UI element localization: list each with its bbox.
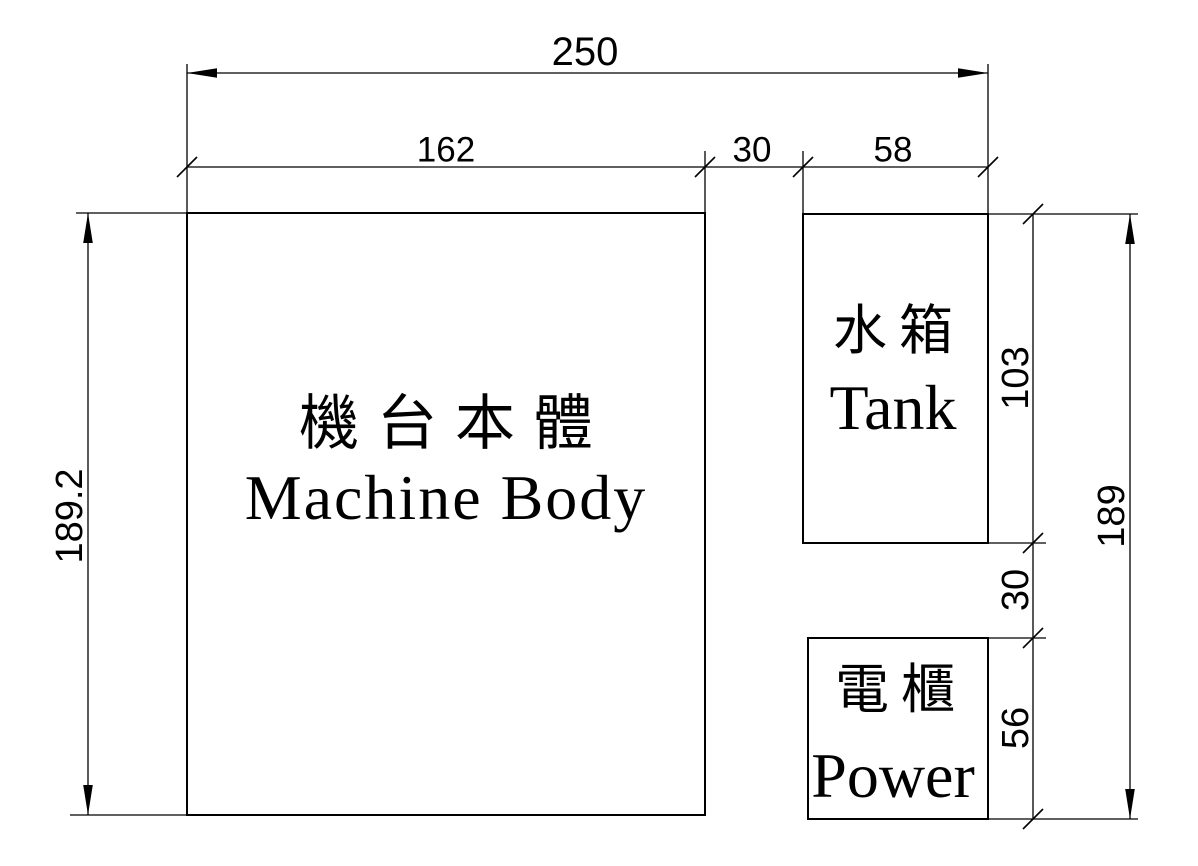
tank-label-en: Tank	[829, 376, 956, 440]
arrow-machine-height-bottom	[83, 785, 93, 815]
dim-text-gap-horizontal: 30	[733, 133, 772, 168]
power-label-en: Power	[811, 744, 975, 808]
machine-body-label-cjk: 機台本體	[281, 394, 611, 454]
tank-label-cjk: 水箱	[821, 304, 965, 358]
drawing-canvas: 250 162 30 58 189.2 103 30 56 189 機台本體 M…	[0, 0, 1198, 866]
dim-text-tank-height: 103	[997, 346, 1035, 409]
arrow-machine-height-top	[83, 213, 93, 243]
arrow-overall-height-top	[1125, 214, 1135, 244]
dim-text-machine-width: 162	[417, 133, 475, 168]
arrow-overall-width-left	[187, 68, 217, 78]
arrow-overall-width-right	[958, 68, 988, 78]
power-label-cjk: 電櫃	[823, 663, 967, 717]
machine-body-label-en: Machine Body	[245, 466, 648, 530]
arrow-overall-height-bottom	[1125, 789, 1135, 819]
dim-text-overall-height: 189	[1093, 484, 1131, 547]
dim-text-machine-height: 189.2	[51, 468, 89, 563]
dim-text-overall-width: 250	[552, 32, 619, 72]
dim-text-gap-vertical: 30	[997, 569, 1035, 611]
dim-text-tank-width: 58	[874, 133, 913, 168]
dim-text-power-height: 56	[997, 707, 1035, 749]
